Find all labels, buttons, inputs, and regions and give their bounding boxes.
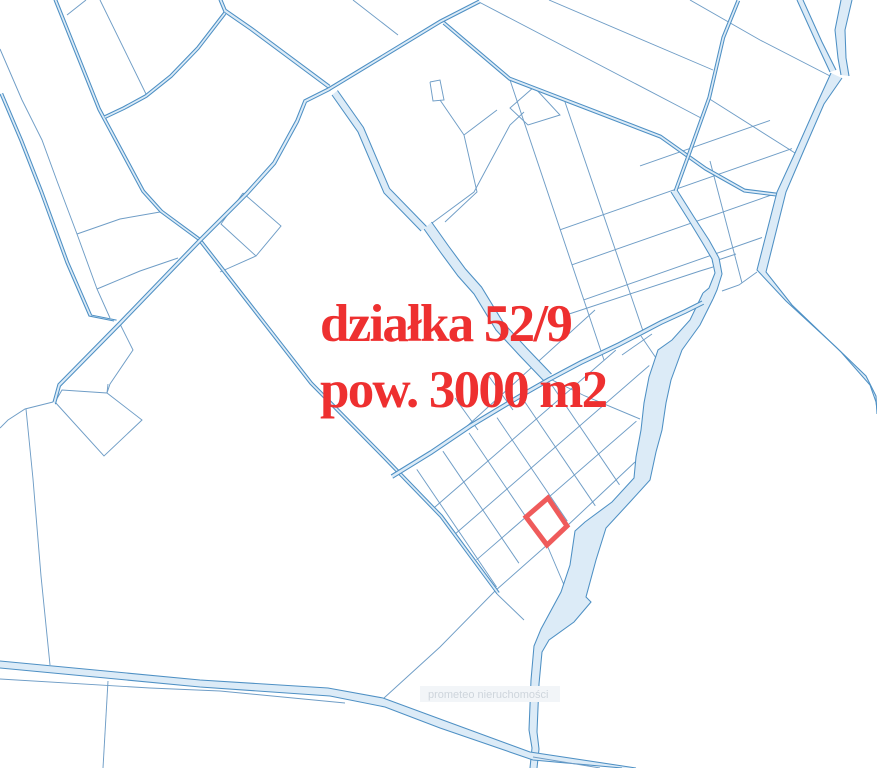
svg-text:pow. 3000 m2: pow. 3000 m2 <box>320 361 607 419</box>
svg-text:prometeo nieruchomości: prometeo nieruchomości <box>428 689 548 701</box>
svg-text:działka 52/9: działka 52/9 <box>320 295 571 353</box>
